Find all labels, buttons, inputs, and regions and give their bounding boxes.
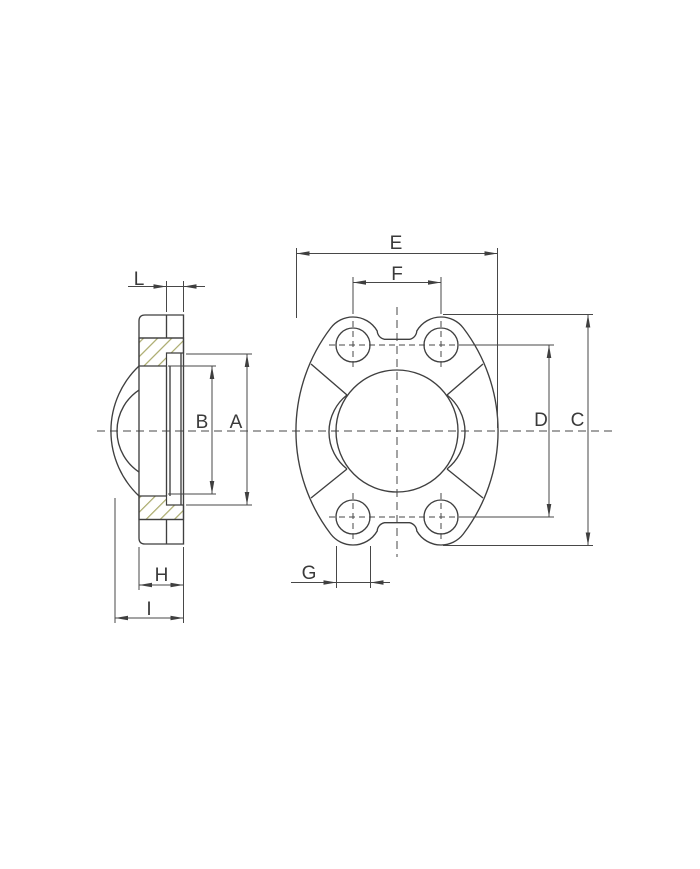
dimension-label-D: D: [534, 410, 548, 431]
technical-drawing-canvas: L B A H I E F C D G: [0, 0, 700, 869]
section-hatch-top: [139, 338, 184, 366]
seat-crescent-right: [447, 395, 465, 469]
dim-B-lines: [168, 366, 216, 494]
dimension-label-C: C: [571, 410, 585, 431]
dimension-label-F: F: [391, 264, 403, 285]
flange-clamp-drawing: L B A H I E F C D G: [0, 0, 700, 869]
side-view: [111, 315, 184, 544]
seat-crescent-left: [329, 395, 347, 469]
dimension-lines: [115, 248, 593, 623]
dimension-label-H: H: [155, 565, 169, 586]
dimension-label-G: G: [302, 563, 317, 584]
dimension-label-A: A: [230, 412, 243, 433]
dimension-label-B: B: [196, 412, 209, 433]
dimension-labels: L B A H I E F C D G: [134, 233, 585, 620]
dimension-label-I: I: [146, 599, 151, 620]
dimension-label-E: E: [390, 233, 403, 254]
dimension-label-L: L: [134, 269, 145, 290]
section-hatch-bottom: [139, 496, 184, 520]
